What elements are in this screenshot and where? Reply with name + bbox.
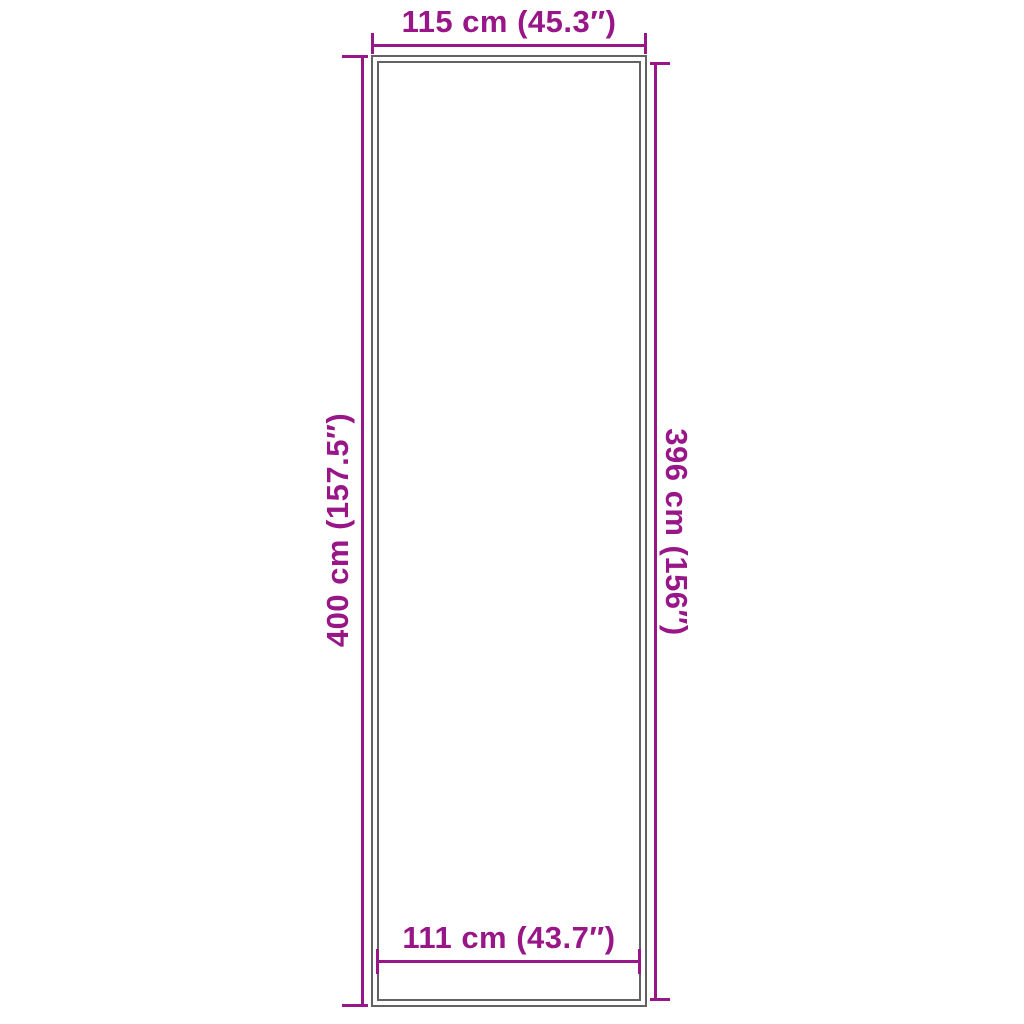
right-dimension-label: 396 cm (156″) xyxy=(656,382,696,682)
left-dimension-tick-bottom xyxy=(342,1004,368,1007)
right-dimension-tick-bottom xyxy=(650,998,670,1001)
bottom-dimension-line xyxy=(376,960,641,963)
top-dimension-line xyxy=(372,44,646,47)
mat-outline-outer xyxy=(371,55,647,1007)
bottom-dimension-label: 111 cm (43.7″) xyxy=(359,918,659,958)
mat-outline-inner xyxy=(377,61,641,1001)
left-dimension-label: 400 cm (157.5″) xyxy=(318,380,358,680)
right-dimension-tick-top xyxy=(650,62,670,65)
dimension-diagram: 115 cm (45.3″) 111 cm (43.7″) 400 cm (15… xyxy=(0,0,1024,1024)
left-dimension-tick-top xyxy=(342,55,368,58)
top-dimension-label: 115 cm (45.3″) xyxy=(359,2,659,42)
left-dimension-line xyxy=(361,57,364,1007)
